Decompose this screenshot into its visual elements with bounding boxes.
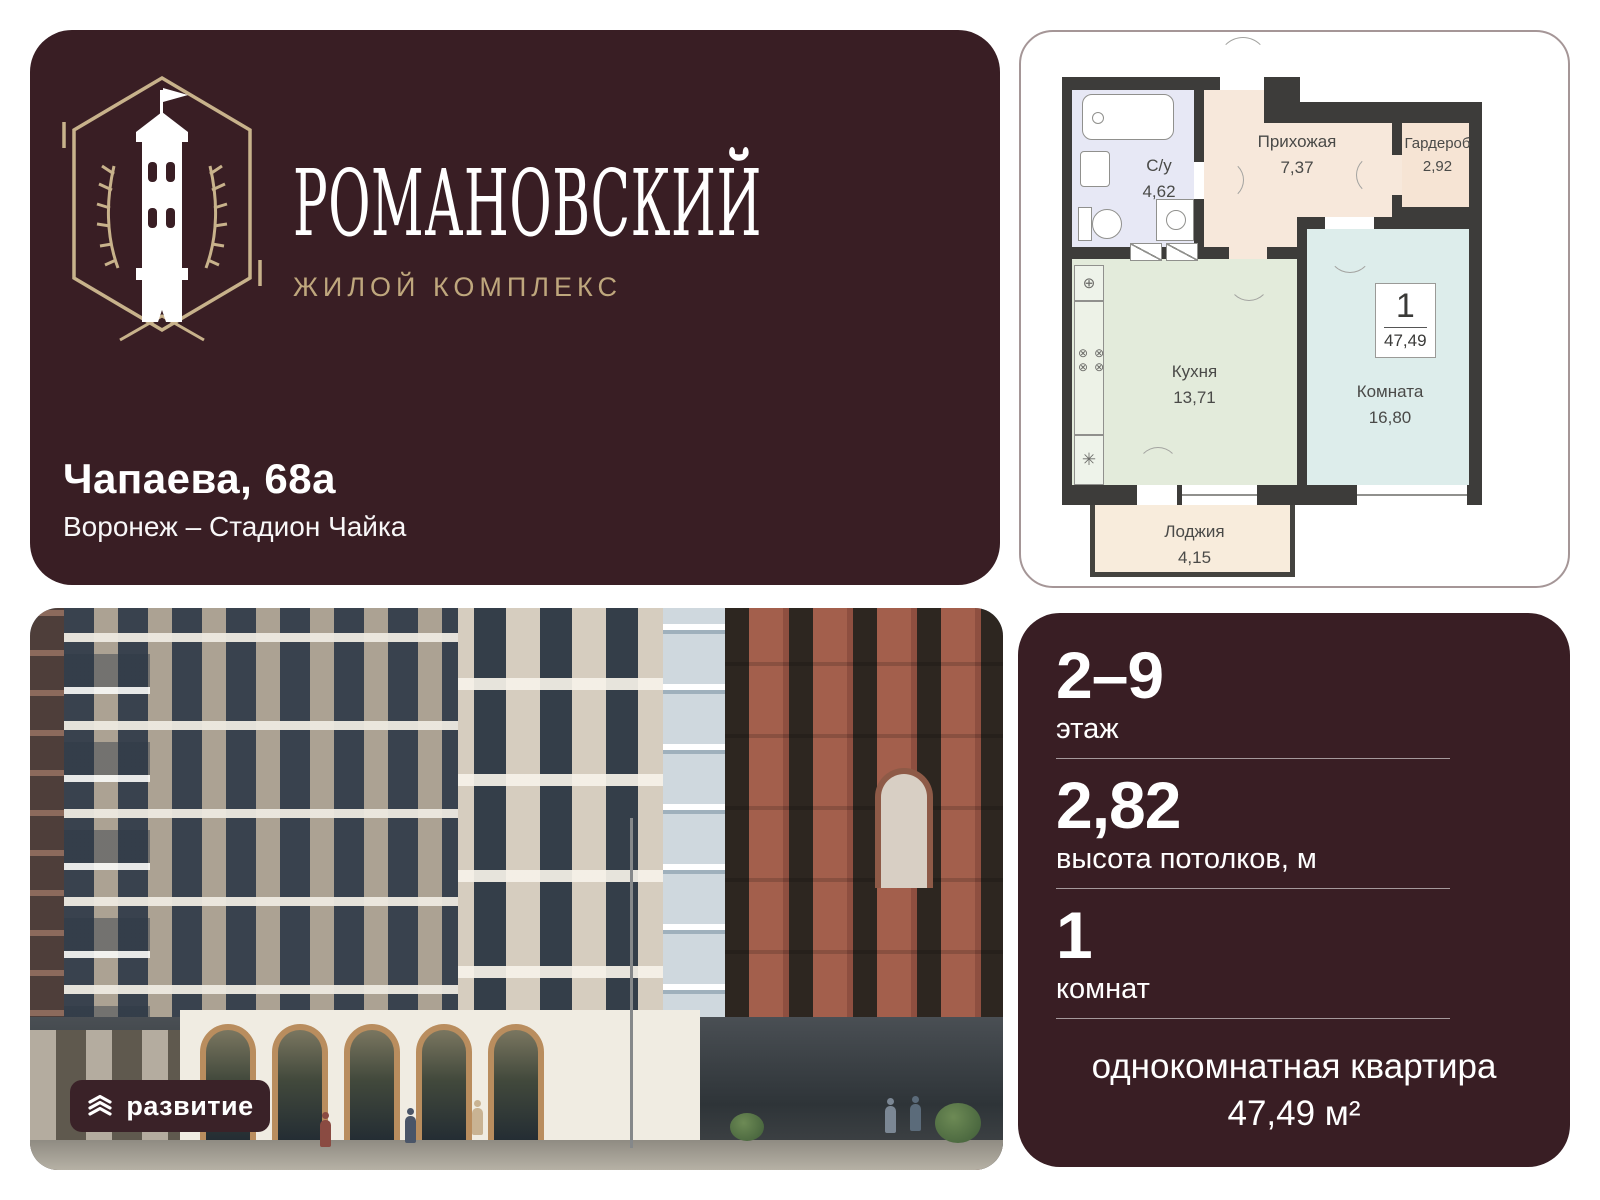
- address-street: Чапаева, 68а: [63, 455, 406, 503]
- pedestrian: [885, 1106, 896, 1133]
- spec-floor: 2–9 этаж: [1056, 641, 1450, 759]
- floorplan-drawing: ⊕ ⊗⊗⊗⊗ ✳ 1 47,49 С/у 4,62 Прихожая 7,37 …: [1042, 47, 1512, 592]
- building-photo: развитие: [30, 608, 1003, 1170]
- spec-rooms: 1 комнат: [1056, 901, 1450, 1019]
- living-door-arc: [1328, 229, 1372, 273]
- greenery: [730, 1113, 764, 1141]
- wall: [1062, 485, 1137, 505]
- unit-number: 1: [1384, 288, 1427, 328]
- washer-drum-icon: [1166, 210, 1186, 230]
- specs-card: 2–9 этаж 2,82 высота потолков, м 1 комна…: [1018, 613, 1570, 1167]
- kitchen-window: [1182, 485, 1257, 505]
- toilet-tank-icon: [1078, 207, 1092, 241]
- brand-emblem: [62, 70, 262, 357]
- spec-ceiling-value: 2,82: [1056, 771, 1450, 840]
- stove-burners-icon: ⊗⊗⊗⊗: [1078, 347, 1104, 373]
- label-wardrobe: Гардероб 2,92: [1380, 133, 1495, 178]
- unit-info-box: 1 47,49: [1375, 283, 1436, 358]
- spec-floor-label: этаж: [1056, 713, 1450, 746]
- sink-icon: [1080, 151, 1110, 187]
- greenery: [935, 1103, 981, 1143]
- wall: [1062, 77, 1072, 505]
- wall: [1297, 217, 1307, 485]
- divider: [1056, 758, 1450, 759]
- brick-arch-window: [875, 768, 933, 888]
- spec-floor-value: 2–9: [1056, 641, 1450, 710]
- brand-subtitle: ЖИЛОЙ КОМПЛЕКС: [293, 272, 1131, 303]
- bathtub-drain-icon: [1092, 112, 1104, 124]
- address-city: Воронеж – Стадион Чайка: [63, 511, 406, 543]
- spec-rooms-label: комнат: [1056, 973, 1450, 1006]
- kitchen-appliance-icon: ✳: [1074, 435, 1104, 485]
- pedestrian: [910, 1104, 921, 1131]
- wall: [1300, 102, 1482, 123]
- spec-ceiling: 2,82 высота потолков, м: [1056, 771, 1450, 889]
- spec-rooms-value: 1: [1056, 901, 1450, 970]
- wall: [1204, 247, 1229, 259]
- wall: [1264, 77, 1300, 123]
- summary-area: 47,49 м²: [1038, 1090, 1550, 1137]
- apartment-summary: однокомнатная квартира 47,49 м²: [1038, 1043, 1550, 1138]
- pedestrian: [472, 1108, 483, 1135]
- kitchen-door-arc: [1228, 259, 1270, 301]
- vent-shaft-icon: [1166, 243, 1198, 261]
- wall: [1257, 485, 1357, 505]
- balconies: [64, 608, 150, 1046]
- vent-shaft-icon: [1130, 243, 1162, 261]
- label-living: Комната 16,80: [1330, 379, 1450, 430]
- divider: [1056, 1018, 1450, 1019]
- tower-emblem-icon: [62, 70, 262, 352]
- developer-name: развитие: [126, 1091, 253, 1122]
- toilet-bowl-icon: [1092, 209, 1122, 239]
- wall: [1194, 90, 1204, 162]
- wall: [1467, 485, 1482, 505]
- label-bathroom: С/у 4,62: [1114, 153, 1204, 204]
- floorplan-card: ⊕ ⊗⊗⊗⊗ ✳ 1 47,49 С/у 4,62 Прихожая 7,37 …: [1019, 30, 1570, 588]
- chevrons-up-icon: [86, 1094, 114, 1118]
- label-kitchen: Кухня 13,71: [1137, 359, 1252, 410]
- label-loggia: Лоджия 4,15: [1137, 519, 1252, 570]
- divider: [1056, 888, 1450, 889]
- summary-type: однокомнатная квартира: [1038, 1043, 1550, 1090]
- arch-window: [488, 1024, 544, 1142]
- spec-ceiling-label: высота потолков, м: [1056, 843, 1450, 876]
- wall: [1062, 77, 1220, 90]
- pedestrian: [405, 1116, 416, 1143]
- wall: [1392, 207, 1482, 219]
- balcony-door-arc: [1137, 447, 1179, 489]
- living-window: [1357, 485, 1467, 505]
- brand-title: РОМАНОВСКИЙ: [293, 158, 762, 250]
- unit-area: 47,49: [1384, 328, 1427, 351]
- brand-card: РОМАНОВСКИЙ ЖИЛОЙ КОМПЛЕКС Чапаева, 68а …: [30, 30, 1000, 585]
- developer-badge: развитие: [70, 1080, 270, 1132]
- entrance-door-arc: [1218, 37, 1268, 87]
- kitchen-sink-icon: ⊕: [1074, 265, 1104, 301]
- pedestrian: [320, 1120, 331, 1147]
- street-lamp: [630, 818, 633, 1148]
- arch-window: [416, 1024, 472, 1142]
- label-hallway: Прихожая 7,37: [1232, 129, 1362, 180]
- arch-window: [344, 1024, 400, 1142]
- address-block: Чапаева, 68а Воронеж – Стадион Чайка: [63, 455, 406, 543]
- pavement: [30, 1140, 1003, 1170]
- wall: [1297, 217, 1325, 229]
